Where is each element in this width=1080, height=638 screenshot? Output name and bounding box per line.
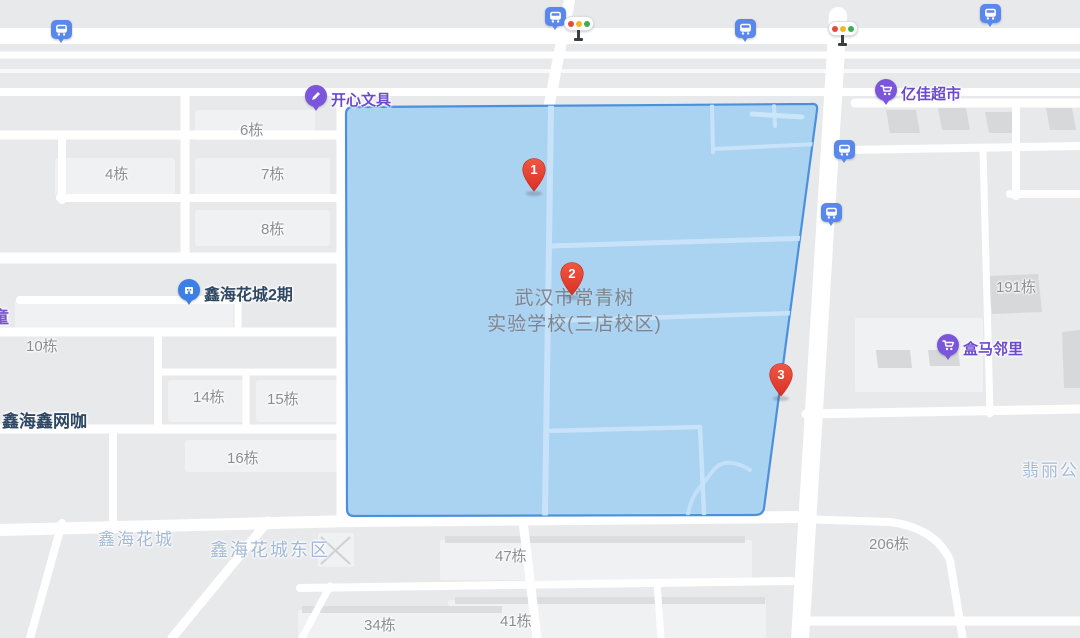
marker-number: 2 bbox=[560, 266, 584, 281]
bus-stop-icon[interactable] bbox=[545, 7, 566, 26]
map-marker-3[interactable]: 3 bbox=[769, 363, 793, 401]
poi-supermarket-hema[interactable]: 盒马邻里 bbox=[937, 334, 1023, 362]
school-name-line2: 实验学校(三店校区) bbox=[437, 312, 712, 338]
map-marker-1[interactable]: 1 bbox=[522, 158, 546, 196]
marker-number: 3 bbox=[769, 367, 793, 382]
traffic-light-icon bbox=[828, 21, 858, 36]
marker-number: 1 bbox=[522, 162, 546, 177]
poi-label: 盒马邻里 bbox=[963, 338, 1023, 359]
poi-label: 开心文具 bbox=[331, 89, 391, 110]
poi-stationery[interactable]: 开心文具 bbox=[305, 85, 391, 113]
bus-stop-icon[interactable] bbox=[980, 4, 1001, 23]
traffic-light-icon bbox=[564, 16, 594, 31]
poi-supermarket-yijia[interactable]: 亿佳超市 bbox=[875, 79, 961, 107]
poi-label: 亿佳超市 bbox=[901, 83, 961, 104]
poi-residence-xinhai2[interactable]: 鑫海花城2期 bbox=[178, 279, 293, 307]
supermarket-cart-pin-icon bbox=[937, 334, 959, 362]
map-canvas[interactable]: 4栋 6栋 7栋 8栋 10栋 14栋 15栋 16栋 34栋 41栋 47栋 … bbox=[0, 0, 1080, 638]
residence-pin-icon bbox=[178, 279, 200, 307]
stationery-pin-icon bbox=[305, 85, 327, 113]
map-marker-2[interactable]: 2 bbox=[560, 262, 584, 300]
bus-stop-icon[interactable] bbox=[821, 203, 842, 222]
supermarket-cart-pin-icon bbox=[875, 79, 897, 107]
bus-stop-icon[interactable] bbox=[51, 20, 72, 39]
bus-stop-icon[interactable] bbox=[834, 140, 855, 159]
bus-stop-icon[interactable] bbox=[735, 19, 756, 38]
poi-label: 鑫海花城2期 bbox=[204, 281, 293, 305]
